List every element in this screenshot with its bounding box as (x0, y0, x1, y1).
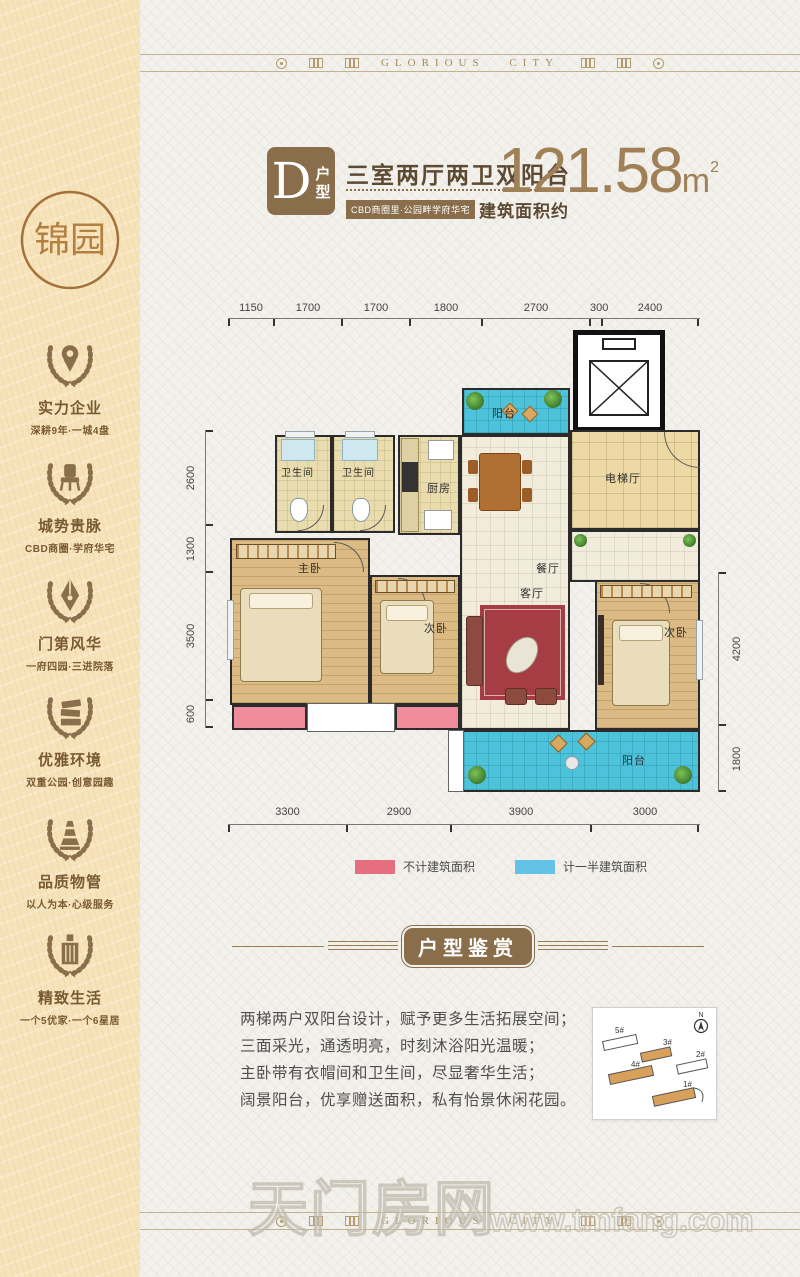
stove (402, 462, 418, 492)
sidebar-item-subtitle: 一府四园·三进院落 (0, 658, 140, 673)
wardrobe (600, 585, 692, 598)
dims-top-line (228, 318, 700, 326)
seal-ornament-icon (345, 58, 359, 68)
plant (544, 390, 562, 408)
seal-ornament-icon (309, 58, 323, 68)
description-line: 主卧带有衣帽间和卫生间，尽显奢华生活； (240, 1060, 590, 1087)
pillow (386, 605, 428, 621)
room-label-kitchen: 厨房 (427, 480, 451, 496)
brand-name-en: GLORIOUS CITY (381, 57, 559, 69)
wardrobe (236, 544, 336, 559)
legend-label-pink: 不计建筑面积 (403, 858, 475, 875)
bed-3 (612, 620, 670, 706)
wardrobe (375, 580, 455, 593)
site-map-drawing: N 5# 3# 2# 4# 1# (593, 1008, 716, 1119)
legend-swatch-blue (515, 860, 555, 874)
building-label-2: 2# (696, 1050, 705, 1059)
room-label-balcony-bottom: 阳台 (622, 752, 646, 768)
sidebar-item-title: 门第风华 (0, 633, 140, 654)
sidebar-item-subtitle: 一个5优家·一个6星居 (0, 1012, 140, 1027)
room-label-balcony-top: 阳台 (492, 405, 516, 421)
room-label-bed3: 次卧 (664, 624, 688, 640)
plant (574, 534, 587, 547)
area-unit: m (682, 164, 710, 198)
bay-window-box (307, 703, 395, 732)
room-label-elevator-hall: 电梯厅 (605, 470, 641, 486)
unit-type-badge: D 户 型 (267, 147, 335, 215)
dims-left-line (205, 430, 213, 728)
non-counted-area-strip-1 (232, 705, 307, 730)
sidebar-item-title: 城势贵脉 (0, 515, 140, 536)
watermark-site-name: 天门房网 (248, 1180, 496, 1240)
sofa (466, 616, 483, 686)
tv-cabinet (598, 615, 604, 685)
description-line: 两梯两户双阳台设计，赋予更多生活拓展空间； (240, 1006, 590, 1033)
dining-table (479, 453, 521, 511)
compass-north-label: N (698, 1012, 703, 1019)
location-pin-icon (41, 332, 99, 390)
dims-top: 1150 1700 1700 1800 2700 300 2400 (228, 302, 698, 314)
sidebar-item-prestige: 门第风华 一府四园·三进院落 (0, 568, 140, 673)
shower (281, 439, 315, 461)
throne-icon (41, 450, 99, 508)
building-label-3: 3# (663, 1038, 672, 1047)
plant (674, 766, 692, 784)
unit-description: 两梯两户双阳台设计，赋予更多生活拓展空间； 三面采光，通透明亮，时刻沐浴阳光温暖… (240, 1006, 590, 1114)
coin-ornament-icon (276, 58, 287, 69)
room-label-master: 主卧 (298, 560, 322, 576)
room-label-living: 客厅 (520, 585, 544, 601)
dining-chair (522, 460, 532, 474)
sidebar-item-subtitle: 双重公园·创意园趣 (0, 774, 140, 789)
unit-word: 户 型 (316, 166, 331, 202)
building-label-5: 5# (615, 1026, 624, 1035)
elevator-shaft (573, 330, 665, 432)
room-label-dining: 餐厅 (536, 560, 560, 576)
pillow (619, 625, 664, 641)
dining-chair (522, 488, 532, 502)
bay-window-column (448, 730, 464, 792)
room-label-bath1: 卫生间 (281, 464, 314, 479)
poster-page: 锦园 实力企业 深耕9年·一城4盘 城势贵脉 CBD商圈·学府华宅 (0, 0, 800, 1277)
dims-left: 2600 1300 3500 600 (182, 430, 200, 728)
plant (683, 534, 696, 547)
building-label-4: 4# (631, 1060, 640, 1069)
plant (468, 766, 486, 784)
sidebar-item-strength: 实力企业 深耕9年·一城4盘 (0, 332, 140, 437)
section-line-right (612, 946, 704, 947)
pillow (249, 593, 313, 609)
section-lines-right (538, 941, 608, 950)
watermark-domain: www.tmfang.com (490, 1200, 754, 1240)
armchair (505, 688, 527, 705)
coin-ornament-icon (653, 58, 664, 69)
window (227, 600, 234, 660)
sidebar-item-subtitle: 深耕9年·一城4盘 (0, 422, 140, 437)
books-icon (41, 684, 99, 742)
site-map: N 5# 3# 2# 4# 1# (592, 1007, 717, 1120)
legend-swatch-pink (355, 860, 395, 874)
sidebar-item-living: 精致生活 一个5优家·一个6星居 (0, 922, 140, 1027)
legend-label-blue: 计一半建筑面积 (563, 858, 647, 875)
sidebar-item-title: 精致生活 (0, 987, 140, 1008)
sidebar-item-title: 实力企业 (0, 397, 140, 418)
area-exponent: 2 (710, 160, 719, 176)
building-label-1: 1# (683, 1080, 692, 1089)
seal-ornament-icon (617, 58, 631, 68)
fountain-icon (41, 806, 99, 864)
top-ornament-band: GLORIOUS CITY (140, 54, 800, 72)
toilet (352, 498, 370, 522)
building-icon (41, 922, 99, 980)
dining-chair (468, 460, 478, 474)
elevator-cross-icon (578, 335, 660, 427)
tagline-chip: CBD商圈里·公园畔学府华宅 (346, 200, 475, 219)
dims-bottom-line (228, 824, 700, 832)
non-counted-area-strip-2 (395, 705, 460, 730)
site-watermark: 天门房网 www.tmfang.com (248, 1180, 754, 1240)
dims-bottom: 3300 2900 3900 3000 (228, 806, 699, 818)
dims-right: 4200 1800 (728, 572, 746, 792)
dims-right-line (718, 572, 726, 792)
window (696, 620, 703, 680)
section-title: 户型鉴赏 (418, 932, 518, 961)
room-label-bath2: 卫生间 (342, 464, 375, 479)
patio-table (565, 756, 579, 770)
brand-sidebar: 锦园 实力企业 深耕9年·一城4盘 城势贵脉 CBD商圈·学府华宅 (0, 0, 140, 1277)
sink (424, 510, 452, 530)
area-value: 121.58 (498, 138, 682, 202)
sidebar-item-subtitle: CBD商圈·学府华宅 (0, 540, 140, 555)
fridge (428, 440, 454, 460)
description-line: 三面采光，通透明亮，时刻沐浴阳光温暖； (240, 1033, 590, 1060)
unit-letter: D (271, 156, 311, 206)
room-corridor (570, 530, 700, 582)
armchair (535, 688, 557, 705)
plan-legend: 不计建筑面积 计一半建筑面积 (355, 858, 647, 875)
toilet (290, 498, 308, 522)
room-label-bed2: 次卧 (424, 620, 448, 636)
seal-ornament-icon (581, 58, 595, 68)
pen-nib-icon (41, 568, 99, 626)
brand-logo-seal: 锦园 (18, 188, 122, 292)
sidebar-item-service: 品质物管 以人为本·心级服务 (0, 806, 140, 911)
section-line-left (232, 946, 324, 947)
shower (342, 439, 378, 461)
window (345, 431, 375, 438)
section-title-box: 户型鉴赏 (404, 928, 532, 965)
bed-2 (380, 600, 434, 674)
sidebar-item-environment: 优雅环境 双重公园·创意园趣 (0, 684, 140, 789)
sidebar-item-subtitle: 以人为本·心级服务 (0, 896, 140, 911)
dining-chair (468, 488, 478, 502)
sidebar-item-title: 品质物管 (0, 871, 140, 892)
sidebar-item-location: 城势贵脉 CBD商圈·学府华宅 (0, 450, 140, 555)
sidebar-item-title: 优雅环境 (0, 749, 140, 770)
section-lines-left (328, 941, 398, 950)
description-line: 阔景阳台，优享赠送面积，私有怡景休闲花园。 (240, 1087, 590, 1114)
bed-master (240, 588, 322, 682)
window (285, 431, 315, 438)
brand-logo-text: 锦园 (34, 220, 106, 261)
plant (466, 392, 484, 410)
area-value-group: 121.58 m 2 (498, 138, 719, 202)
